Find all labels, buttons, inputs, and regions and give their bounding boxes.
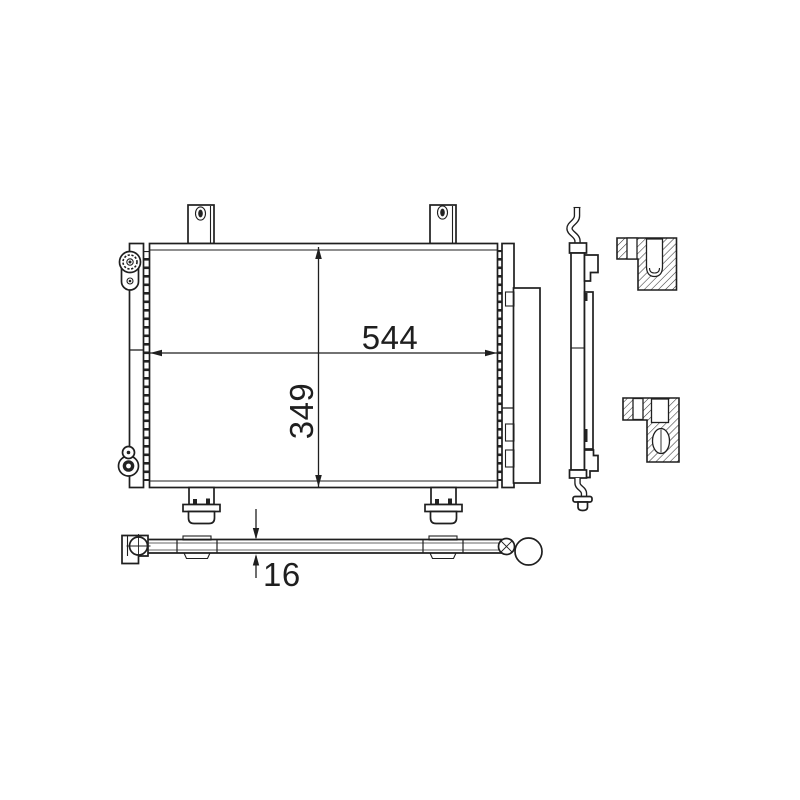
width-dimension-label: 544 xyxy=(362,319,419,356)
left-fin-serration xyxy=(144,251,150,481)
height-dimension-label: 349 xyxy=(283,383,320,440)
drier-bottom-circle xyxy=(515,538,542,565)
technical-drawing-page: 544 349 xyxy=(0,0,800,800)
section-slot xyxy=(627,238,637,259)
top-mount-bracket-right xyxy=(430,205,456,244)
top-mount-bracket-left xyxy=(188,205,214,244)
side-rear-panel xyxy=(585,292,594,449)
section-channel xyxy=(652,399,669,423)
pipe-bottom-circle xyxy=(499,539,515,555)
inlet-port-fitting xyxy=(120,252,141,291)
section-slot xyxy=(633,399,643,420)
bottom-mount-foot-right xyxy=(425,488,462,524)
thickness-dimension-label: 16 xyxy=(263,556,301,593)
bottom-mount-foot-left xyxy=(183,488,220,524)
condenser-core xyxy=(150,244,498,488)
condenser-technical-drawing: 544 349 xyxy=(0,0,800,800)
front-view xyxy=(119,205,541,524)
bolt-hole xyxy=(647,239,663,277)
